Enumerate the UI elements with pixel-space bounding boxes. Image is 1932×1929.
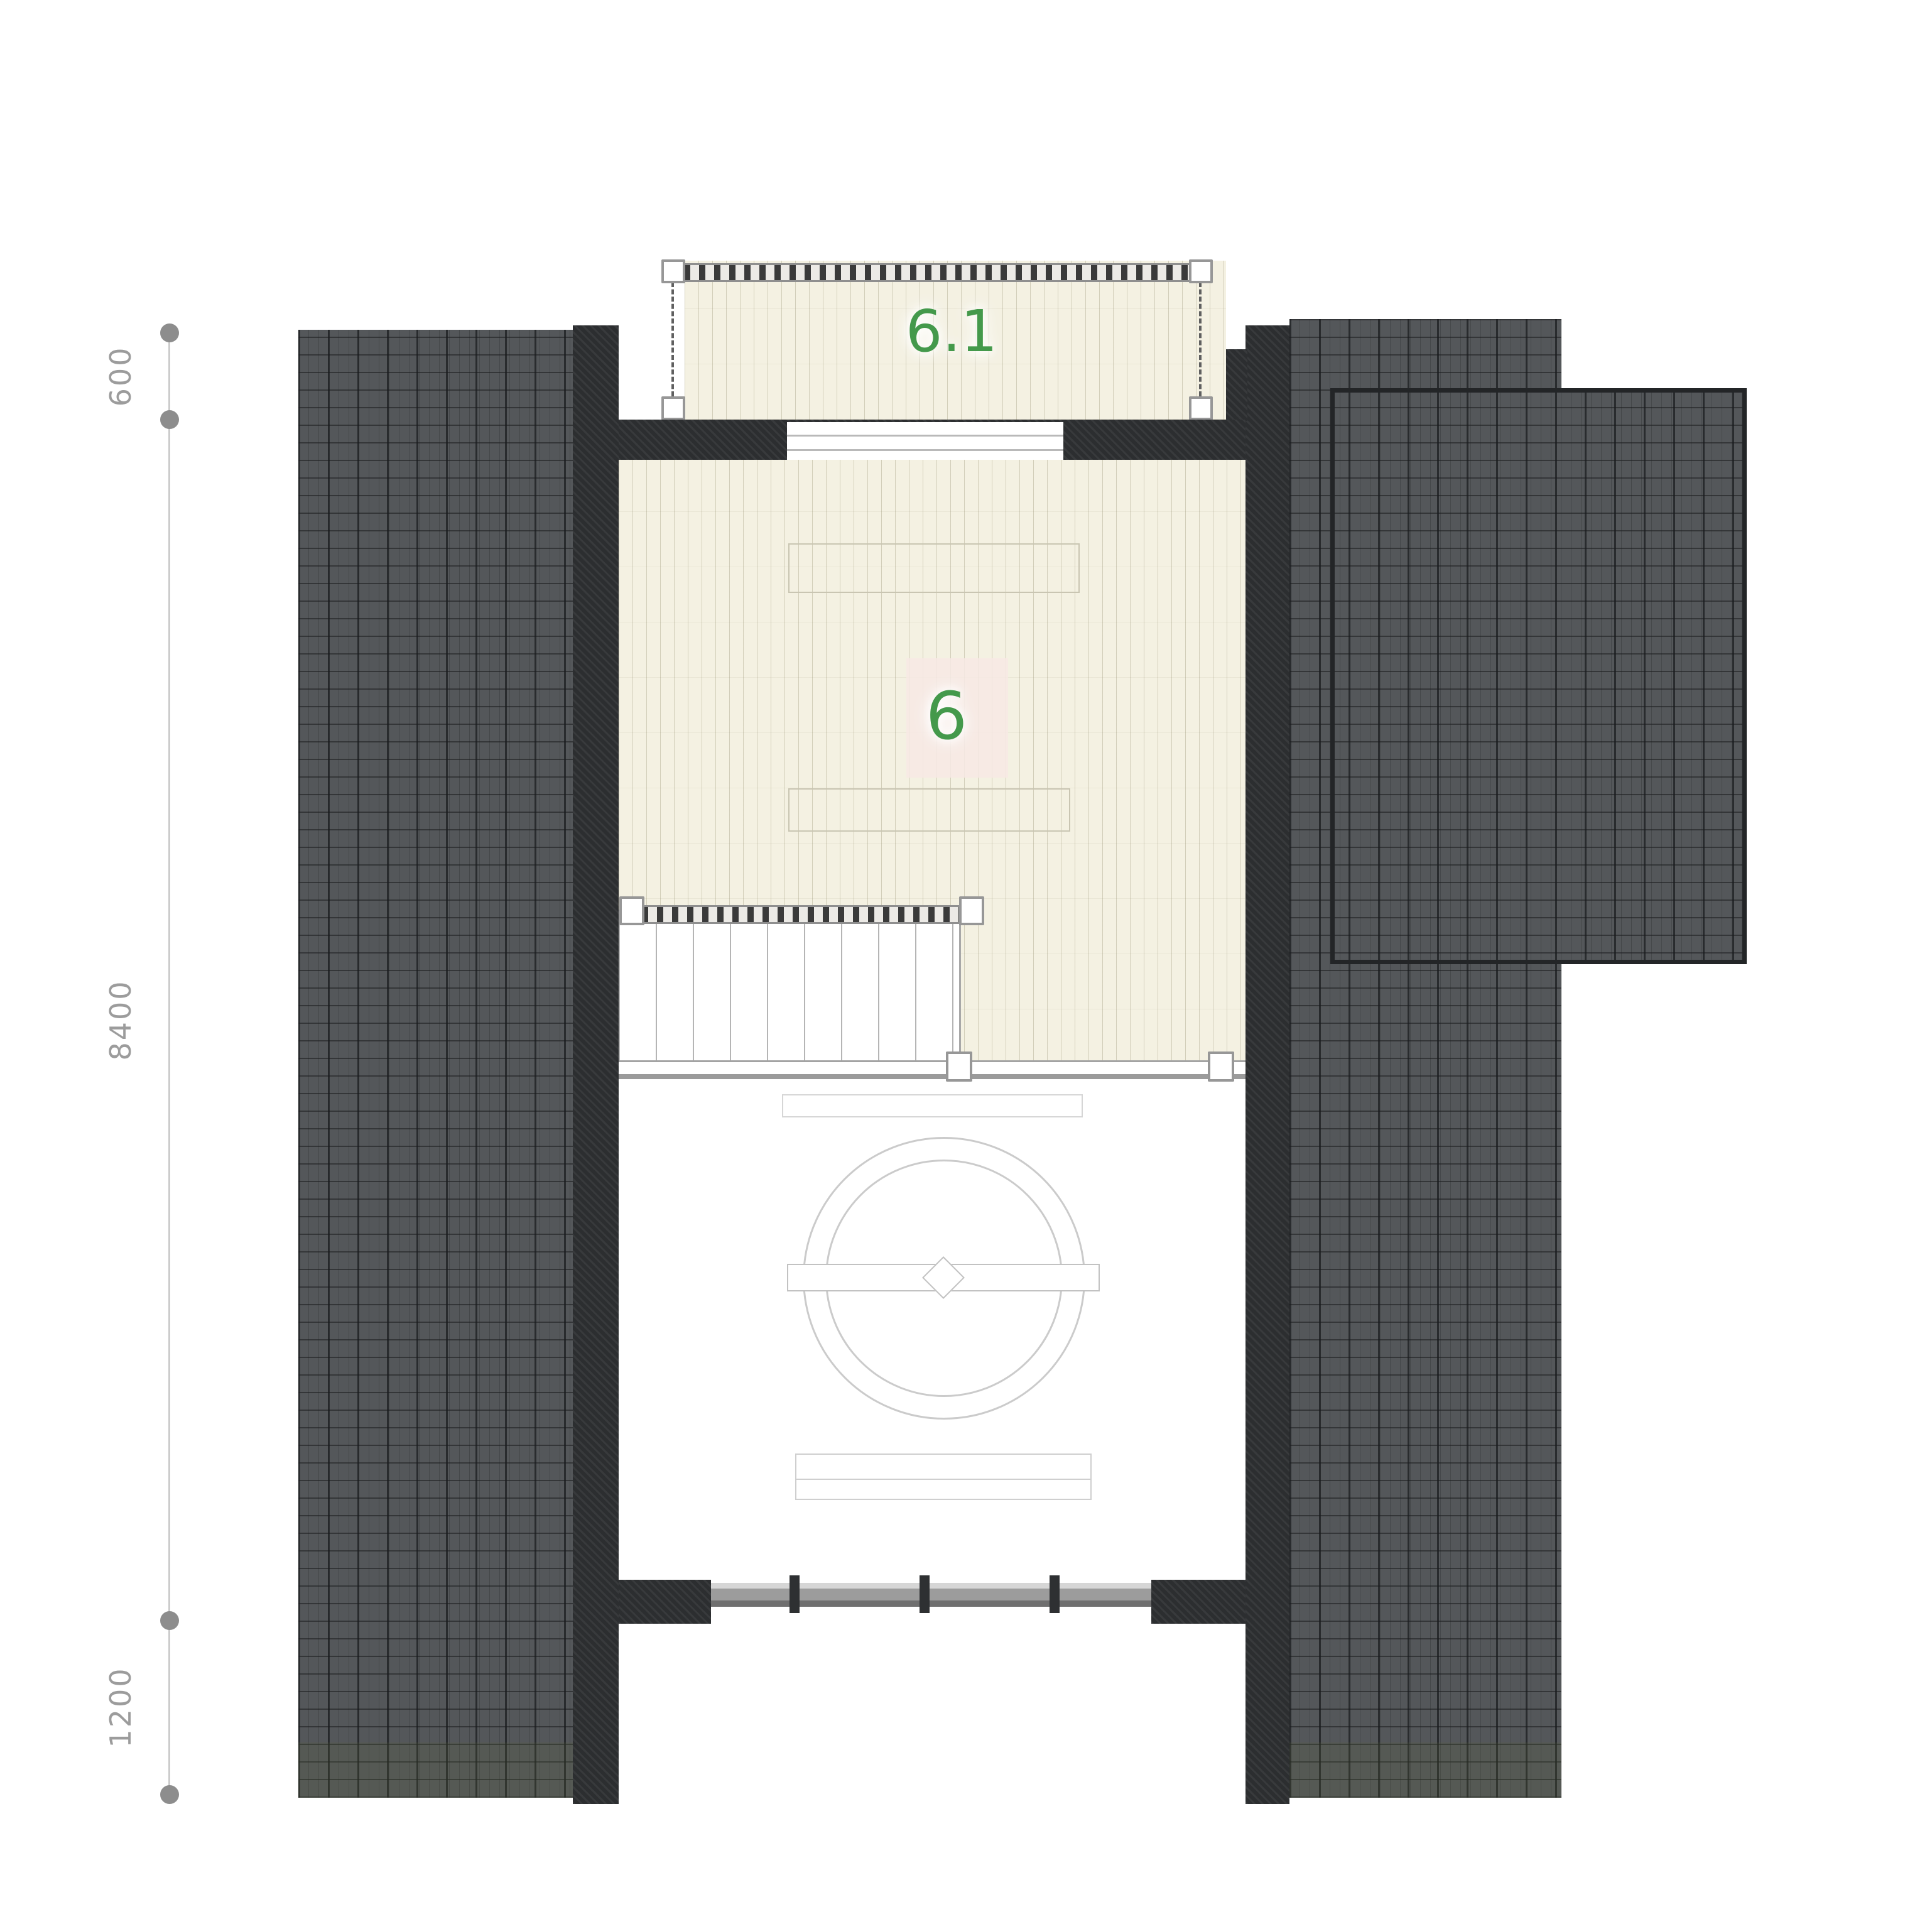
floor-opening-edge [619, 1060, 1245, 1079]
railing-post [619, 896, 644, 925]
dimension-label-1200: 1200 [105, 1644, 136, 1770]
wall-left [573, 325, 619, 1804]
stair-run [619, 910, 961, 1065]
balcony-edge-left [671, 282, 674, 396]
room-label-balcony: 6.1 [857, 294, 1046, 369]
dimension-label-8400: 8400 [105, 957, 136, 1083]
roof-dormer-outline [1330, 388, 1747, 964]
railing-post [1189, 396, 1213, 420]
roof-eave-shade [298, 1742, 573, 1798]
balcony-railing [684, 263, 1191, 282]
railing-post [661, 259, 685, 283]
window-mullion [1050, 1575, 1060, 1613]
railing-post [959, 896, 984, 925]
skylight-outline [788, 788, 1070, 832]
railing-post [661, 396, 685, 420]
skylight-outline [788, 543, 1080, 593]
dimension-line [168, 333, 170, 1795]
window-bottom [711, 1583, 1151, 1607]
roof-left [298, 330, 573, 1798]
stair-railing [642, 905, 962, 924]
floor-plan-canvas: 600 8400 1200 6.1 6 [0, 0, 1932, 1929]
wall-bottom-left-stub [619, 1580, 711, 1624]
beam-outline [795, 1479, 1092, 1500]
window-mullion [790, 1575, 800, 1613]
railing-post [1208, 1051, 1234, 1082]
railing-post [1189, 259, 1213, 283]
dimension-dot [160, 1611, 179, 1630]
beam-outline [782, 1094, 1083, 1117]
dimension-dot [160, 323, 179, 342]
room-label-main: 6 [884, 677, 1009, 756]
wall-bottom-right-stub [1151, 1580, 1245, 1624]
beam-outline [795, 1454, 1092, 1481]
railing-post [946, 1051, 972, 1082]
roof-eave-shade [1289, 1742, 1747, 1798]
dimension-dot [160, 1785, 179, 1804]
dimension-label-600: 600 [105, 313, 136, 439]
balcony-edge-right [1199, 282, 1202, 396]
wall-right [1245, 325, 1289, 1804]
dimension-dot [160, 410, 179, 429]
window-mullion [920, 1575, 930, 1613]
